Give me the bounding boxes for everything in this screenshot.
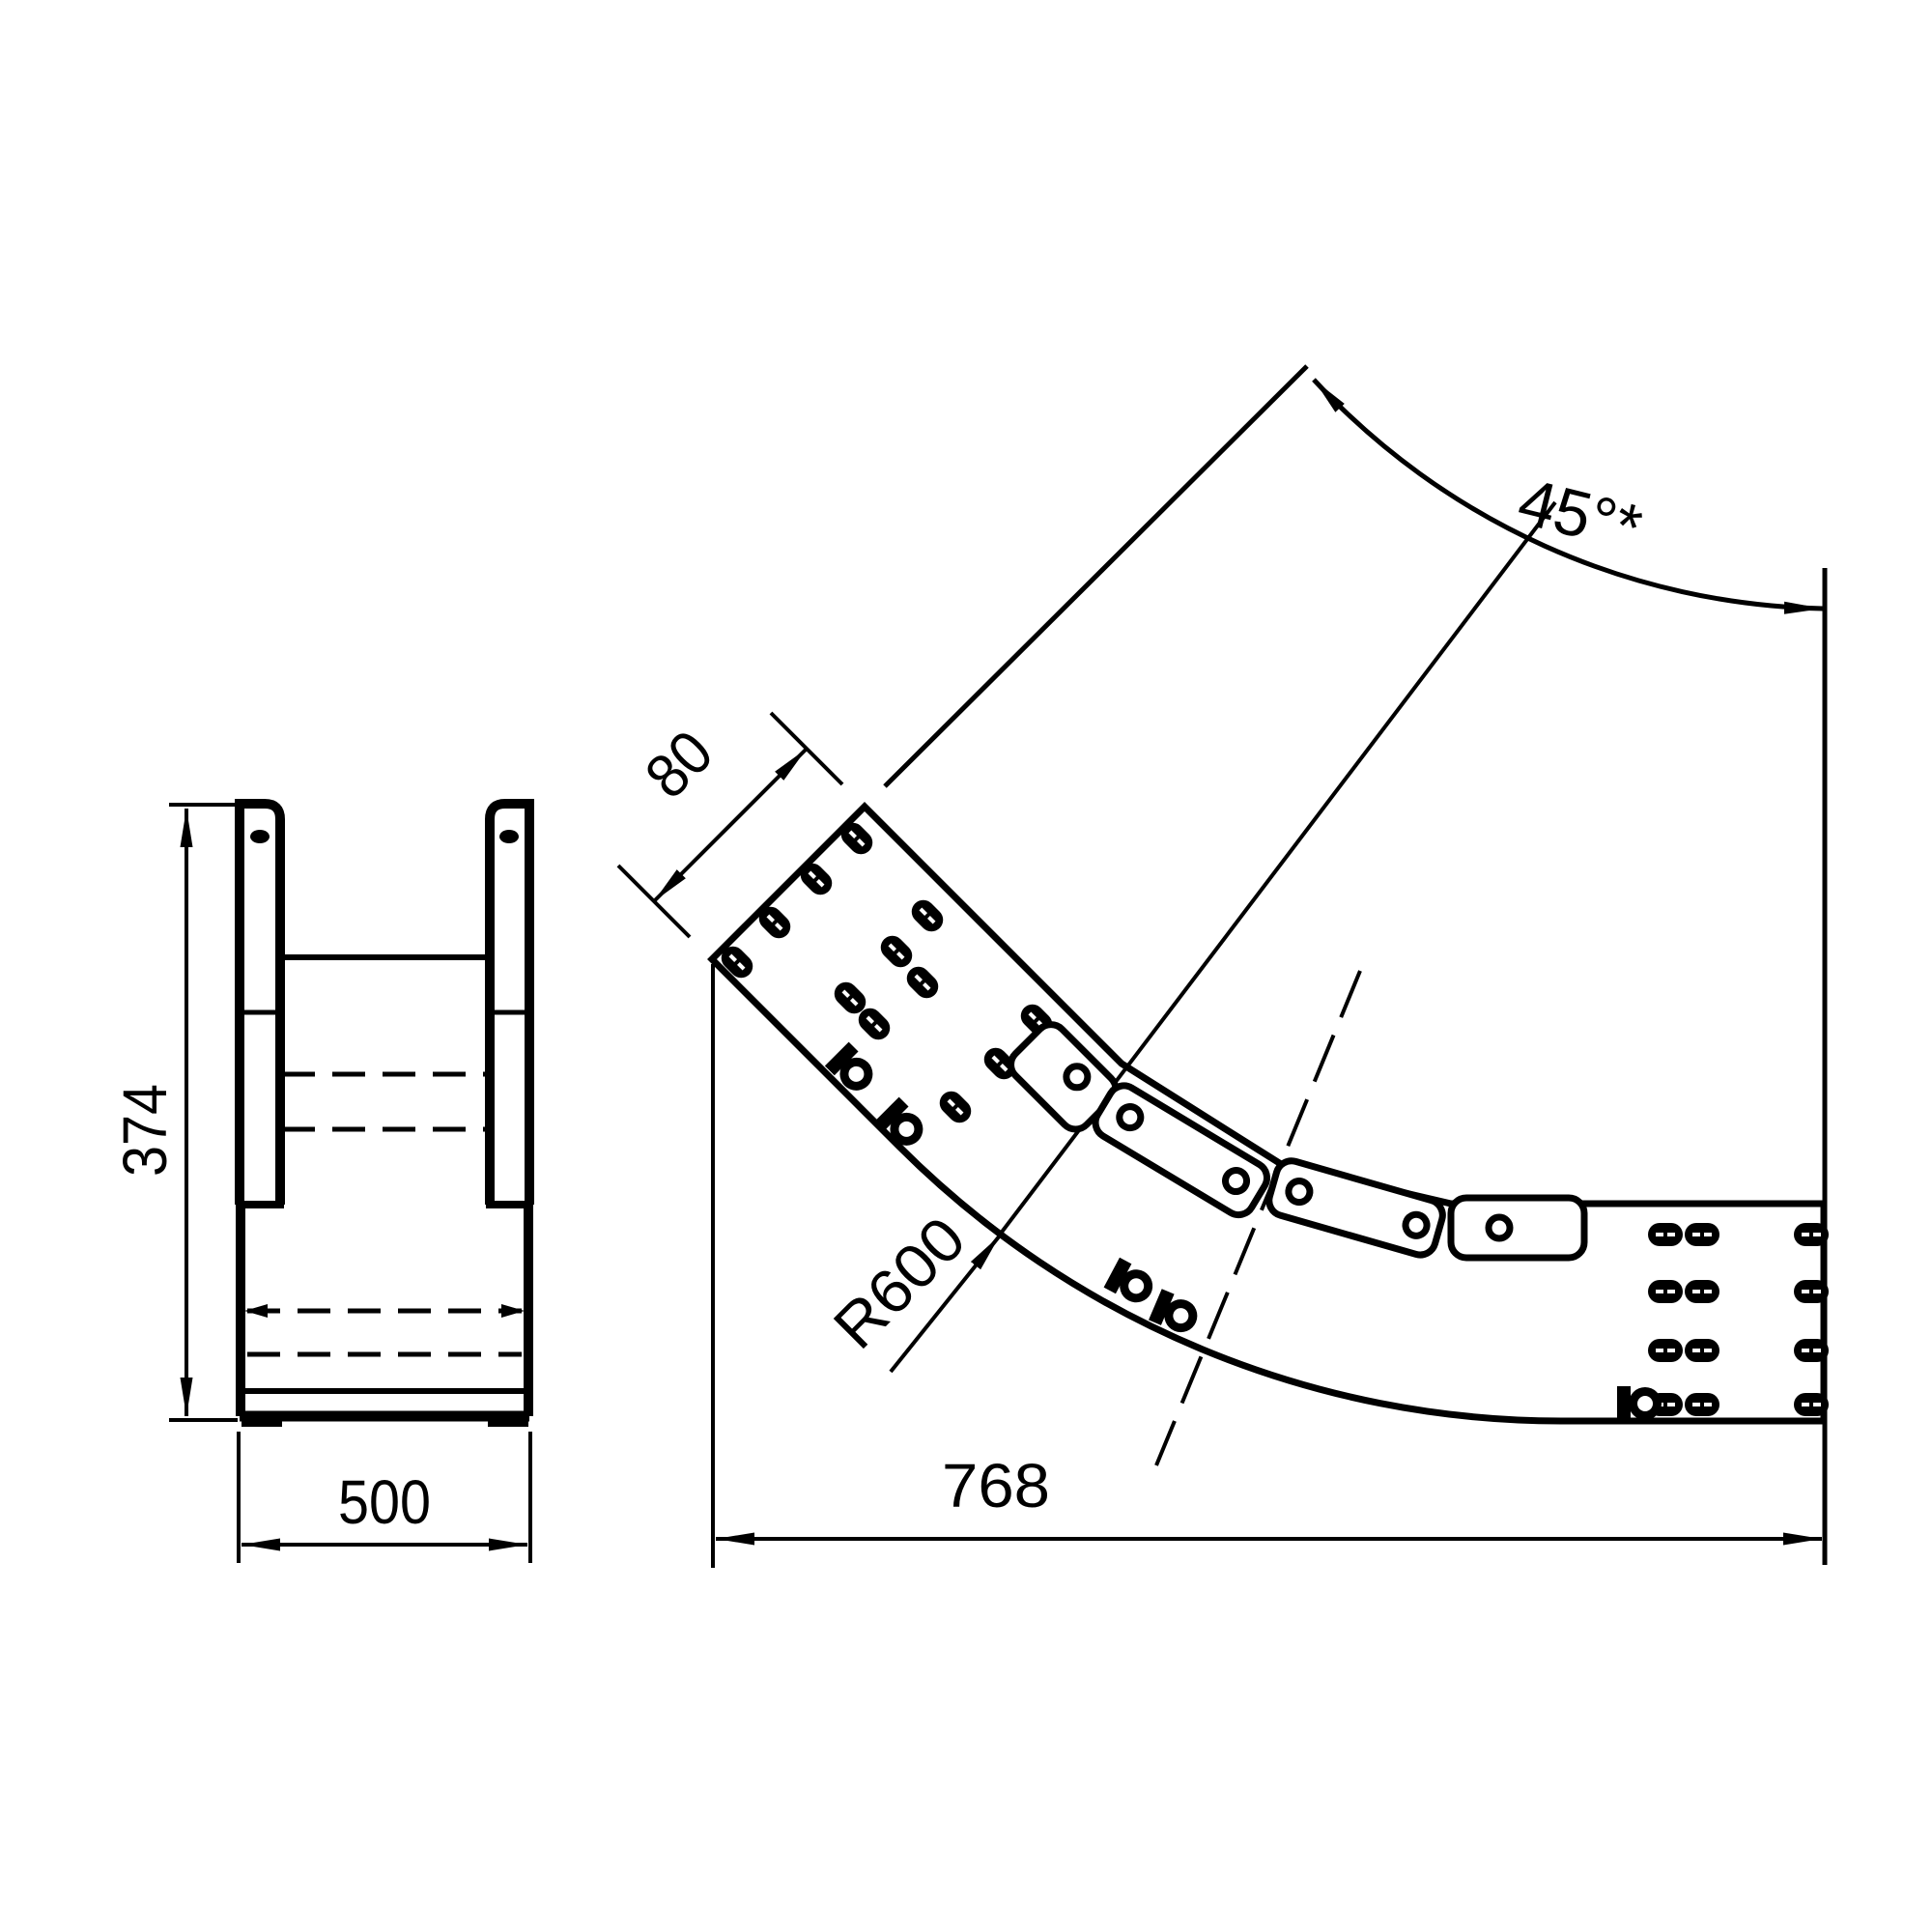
dim-r600-text: R600	[820, 1204, 979, 1362]
end-view: 374 500	[110, 804, 533, 1563]
dim-768-text: 768	[942, 1451, 1050, 1520]
splice-plate-4	[1451, 1198, 1584, 1258]
clamp-icon	[1617, 1386, 1662, 1420]
dim-374-text: 374	[110, 1084, 180, 1177]
hidden-line-left-arrow-icon	[244, 1304, 268, 1318]
dim-80-text: 80	[632, 717, 726, 811]
end-view-left-foot	[241, 1417, 282, 1427]
dim-500-text: 500	[338, 1467, 431, 1537]
dim-500: 500	[239, 1432, 530, 1563]
side-view: 80 45°* R600 768	[618, 366, 1829, 1568]
end-view-left-rail	[240, 804, 280, 1205]
angle-tangent-line	[885, 366, 1307, 786]
drawing-canvas: 374 500	[0, 0, 1932, 1932]
end-view-right-hole	[499, 830, 519, 843]
dim-r600: R600	[820, 1204, 1000, 1372]
dim-angle-text: 45°*	[1511, 465, 1649, 566]
dim-374: 374	[110, 805, 238, 1420]
end-view-left-hole	[250, 830, 270, 843]
drawing-sheet: 374 500	[0, 0, 1932, 1932]
hidden-line-right-arrow-icon	[501, 1304, 525, 1318]
end-view-right-foot	[488, 1417, 528, 1427]
end-view-right-rail	[490, 804, 529, 1205]
